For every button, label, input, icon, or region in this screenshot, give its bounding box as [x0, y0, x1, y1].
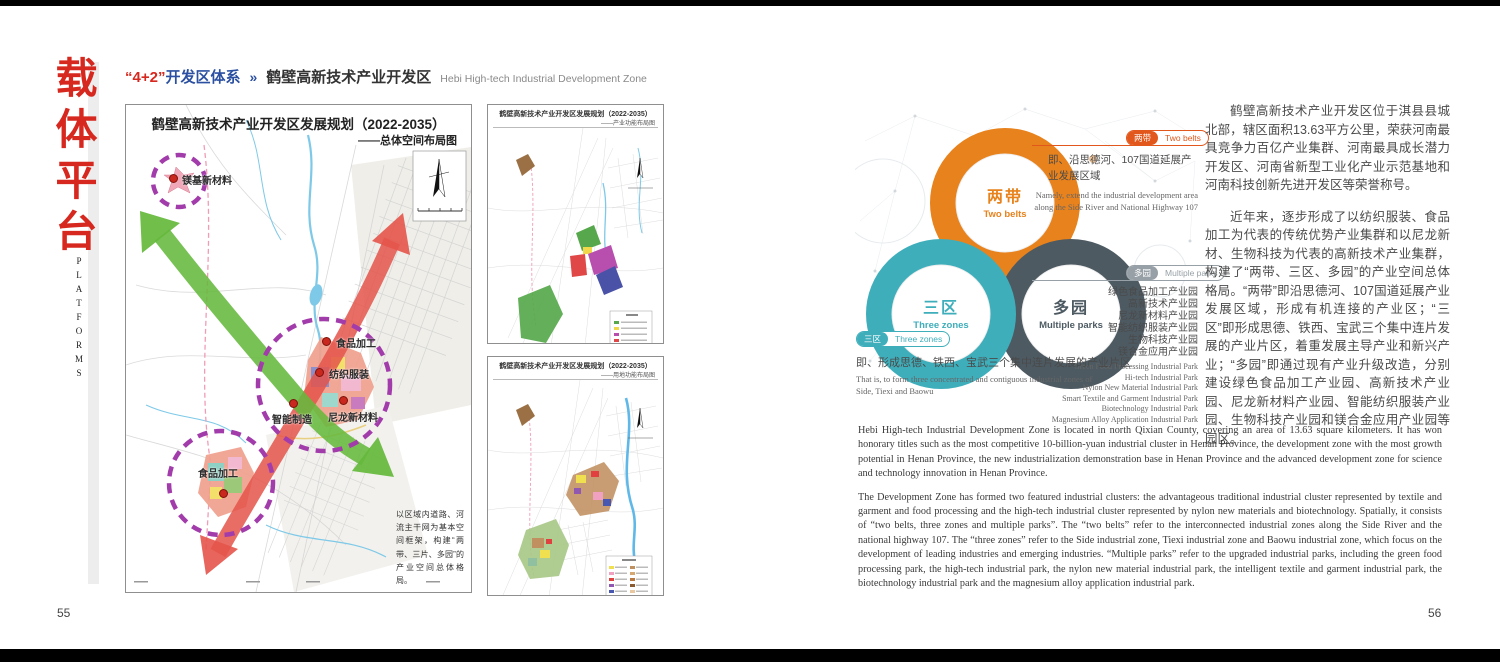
series-label-blue: 开发区体系	[165, 69, 240, 86]
chapter-subtitle-vertical: PLATFORMS	[74, 256, 84, 466]
main-map-title: 鹤壁高新技术产业开发区发展规划（2022-2035）	[126, 113, 471, 133]
cluster-label: 纺织服装	[329, 366, 369, 381]
cluster-dot	[169, 174, 178, 183]
main-map-subtitle: ——总体空间布局图	[358, 132, 457, 148]
cluster-dot	[339, 396, 348, 405]
main-planning-map: 鹤壁高新技术产业开发区发展规划（2022-2035） ——总体空间布局图 镁基新…	[125, 104, 472, 593]
parks-list-cn: 绿色食品加工产业园 高新技术产业园 尼龙新材料产业园 智能纺织服装产业园 生物科…	[1040, 287, 1198, 359]
industry-function-map-graphic	[488, 128, 663, 344]
two-belts-tag: 两带 Two belts	[1126, 130, 1209, 146]
three-zones-en: Three zones	[886, 320, 996, 331]
park-item-en: Biotechnology Industrial Park	[990, 404, 1198, 415]
industry-function-map: 鹤壁高新技术产业开发区发展规划（2022-2035） ——产业功能布局图	[487, 104, 664, 344]
three-zones-tag-cn: 三区	[857, 332, 888, 346]
section-header: “4+2”开发区体系 » 鹤壁高新技术产业开发区 Hebi High-tech …	[125, 66, 647, 87]
cluster-label: 食品加工	[336, 335, 376, 350]
park-item-cn: 绿色食品加工产业园	[1040, 287, 1198, 299]
series-label: “4+2”开发区体系	[125, 66, 240, 87]
park-item-cn: 生物科技产业园	[1040, 335, 1198, 347]
two-belts-tag-cn: 两带	[1127, 131, 1158, 145]
body-cn-paragraph-1: 鹤壁高新技术产业开发区位于淇县县城北部，辖区面积13.63平方公里，荣获河南最具…	[1205, 102, 1450, 195]
park-item-cn: 高新技术产业园	[1040, 299, 1198, 311]
landuse-function-map-graphic	[488, 380, 663, 596]
three-zones-note-en: That is, to form three concentrated and …	[856, 373, 1106, 398]
body-text-en: Hebi High-tech Industrial Development Zo…	[858, 424, 1442, 591]
cluster-label: 智能制造	[272, 411, 312, 426]
cluster-dot	[289, 399, 298, 408]
small-map-subtitle: ——用地功能布局图	[601, 370, 655, 379]
chevron-separator-icon: »	[249, 69, 257, 85]
map-note: 以区域内道路、河流主干网为基本空间框架，构建“两带、三片、多园”的产业空间总体格…	[396, 508, 464, 587]
page-spread: 载体平台 PLATFORMS “4+2”开发区体系 » 鹤壁高新技术产业开发区 …	[0, 6, 1500, 649]
cluster-label: 食品加工	[198, 465, 238, 480]
two-belts-tag-en: Two belts	[1158, 133, 1208, 143]
multiple-parks-tag-cn: 多园	[1127, 266, 1158, 280]
park-item-cn: 智能纺织服装产业园	[1040, 323, 1198, 335]
chapter-title-vertical: 载体平台	[52, 56, 94, 486]
landuse-function-map: 鹤壁高新技术产业开发区发展规划（2022-2035） ——用地功能布局图	[487, 356, 664, 596]
zone-title-en: Hebi High-tech Industrial Development Zo…	[440, 73, 647, 85]
three-zones-tag-en: Three zones	[888, 334, 949, 344]
page-number-right: 56	[1428, 606, 1441, 620]
three-zones-note-cn: 即、形成思德、铁西、宝武三个集中连片发展的产业片区	[856, 355, 1196, 372]
two-belts-note-en: Namely, extend the industrial developmen…	[1028, 189, 1198, 214]
small-map-subtitle: ——产业功能布局图	[601, 118, 655, 127]
divider	[493, 379, 658, 380]
cluster-label: 尼龙新材料	[328, 409, 378, 424]
park-item-cn: 尼龙新材料产业园	[1040, 311, 1198, 323]
body-en-paragraph-1: Hebi High-tech Industrial Development Zo…	[858, 424, 1442, 482]
cluster-dot	[219, 489, 228, 498]
page-number-left: 55	[57, 606, 70, 620]
body-cn-paragraph-2: 近年来，逐步形成了以纺织服装、食品加工为代表的传统优势产业集群和以尼龙新材、生物…	[1205, 208, 1450, 449]
cluster-label: 镁基新材料	[182, 172, 232, 187]
three-zones-tag: 三区 Three zones	[856, 331, 950, 347]
two-belts-note-cn: 即、沿思德河、107国道延展产业发展区域	[1048, 153, 1198, 185]
cluster-dot	[315, 368, 324, 377]
book-spread: 载体平台 PLATFORMS “4+2”开发区体系 » 鹤壁高新技术产业开发区 …	[0, 0, 1500, 662]
cluster-dot	[322, 337, 331, 346]
ring-label-three-zones: 三区 Three zones	[886, 294, 996, 331]
three-zones-cn: 三区	[886, 294, 996, 318]
body-en-paragraph-2: The Development Zone has formed two feat…	[858, 491, 1442, 592]
body-text-cn: 鹤壁高新技术产业开发区位于淇县县城北部，辖区面积13.63平方公里，荣获河南最具…	[1205, 102, 1450, 448]
zone-title-cn: 鹤壁高新技术产业开发区	[266, 66, 431, 87]
divider	[493, 127, 658, 128]
series-label-red: “4+2”	[125, 69, 165, 86]
